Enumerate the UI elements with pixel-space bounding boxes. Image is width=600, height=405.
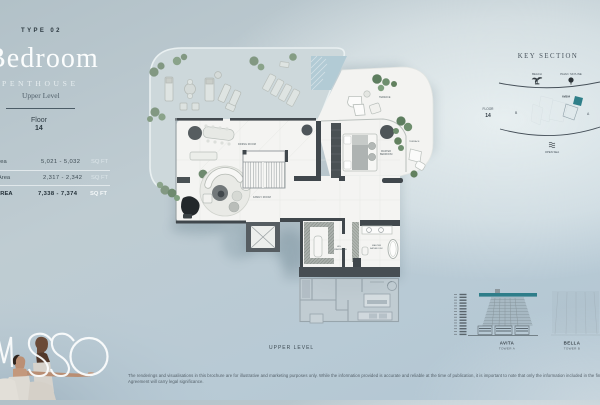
svg-text:TERRACE: TERRACE [379, 96, 391, 99]
svg-text:AVITA: AVITA [500, 341, 515, 346]
svg-text:DINING ROOM: DINING ROOM [238, 142, 256, 146]
svg-text:AVB04: AVB04 [562, 95, 571, 99]
svg-text:A: A [587, 112, 590, 116]
svg-text:WARDROBE: WARDROBE [334, 248, 347, 251]
svg-text:FLOOR: FLOOR [483, 107, 495, 111]
svg-text:KEY SECTION: KEY SECTION [518, 53, 579, 60]
svg-text:BATHROOM: BATHROOM [370, 247, 383, 250]
svg-text:BELLA: BELLA [564, 341, 581, 346]
svg-text:B: B [515, 111, 518, 115]
svg-text:HIS: HIS [337, 246, 341, 248]
svg-text:FAMILY ROOM: FAMILY ROOM [253, 195, 271, 199]
svg-text:OPEN SEA: OPEN SEA [545, 150, 559, 154]
svg-text:14: 14 [485, 113, 491, 119]
svg-text:PALM / SKYLINE: PALM / SKYLINE [560, 72, 582, 76]
svg-text:BEDROOM: BEDROOM [380, 153, 392, 156]
svg-text:TOWER A: TOWER A [499, 347, 516, 351]
svg-text:MASTER: MASTER [372, 244, 382, 247]
svg-text:TOWER B: TOWER B [564, 347, 580, 351]
svg-text:TERRACE: TERRACE [409, 140, 420, 143]
svg-text:BEACH: BEACH [532, 72, 542, 76]
